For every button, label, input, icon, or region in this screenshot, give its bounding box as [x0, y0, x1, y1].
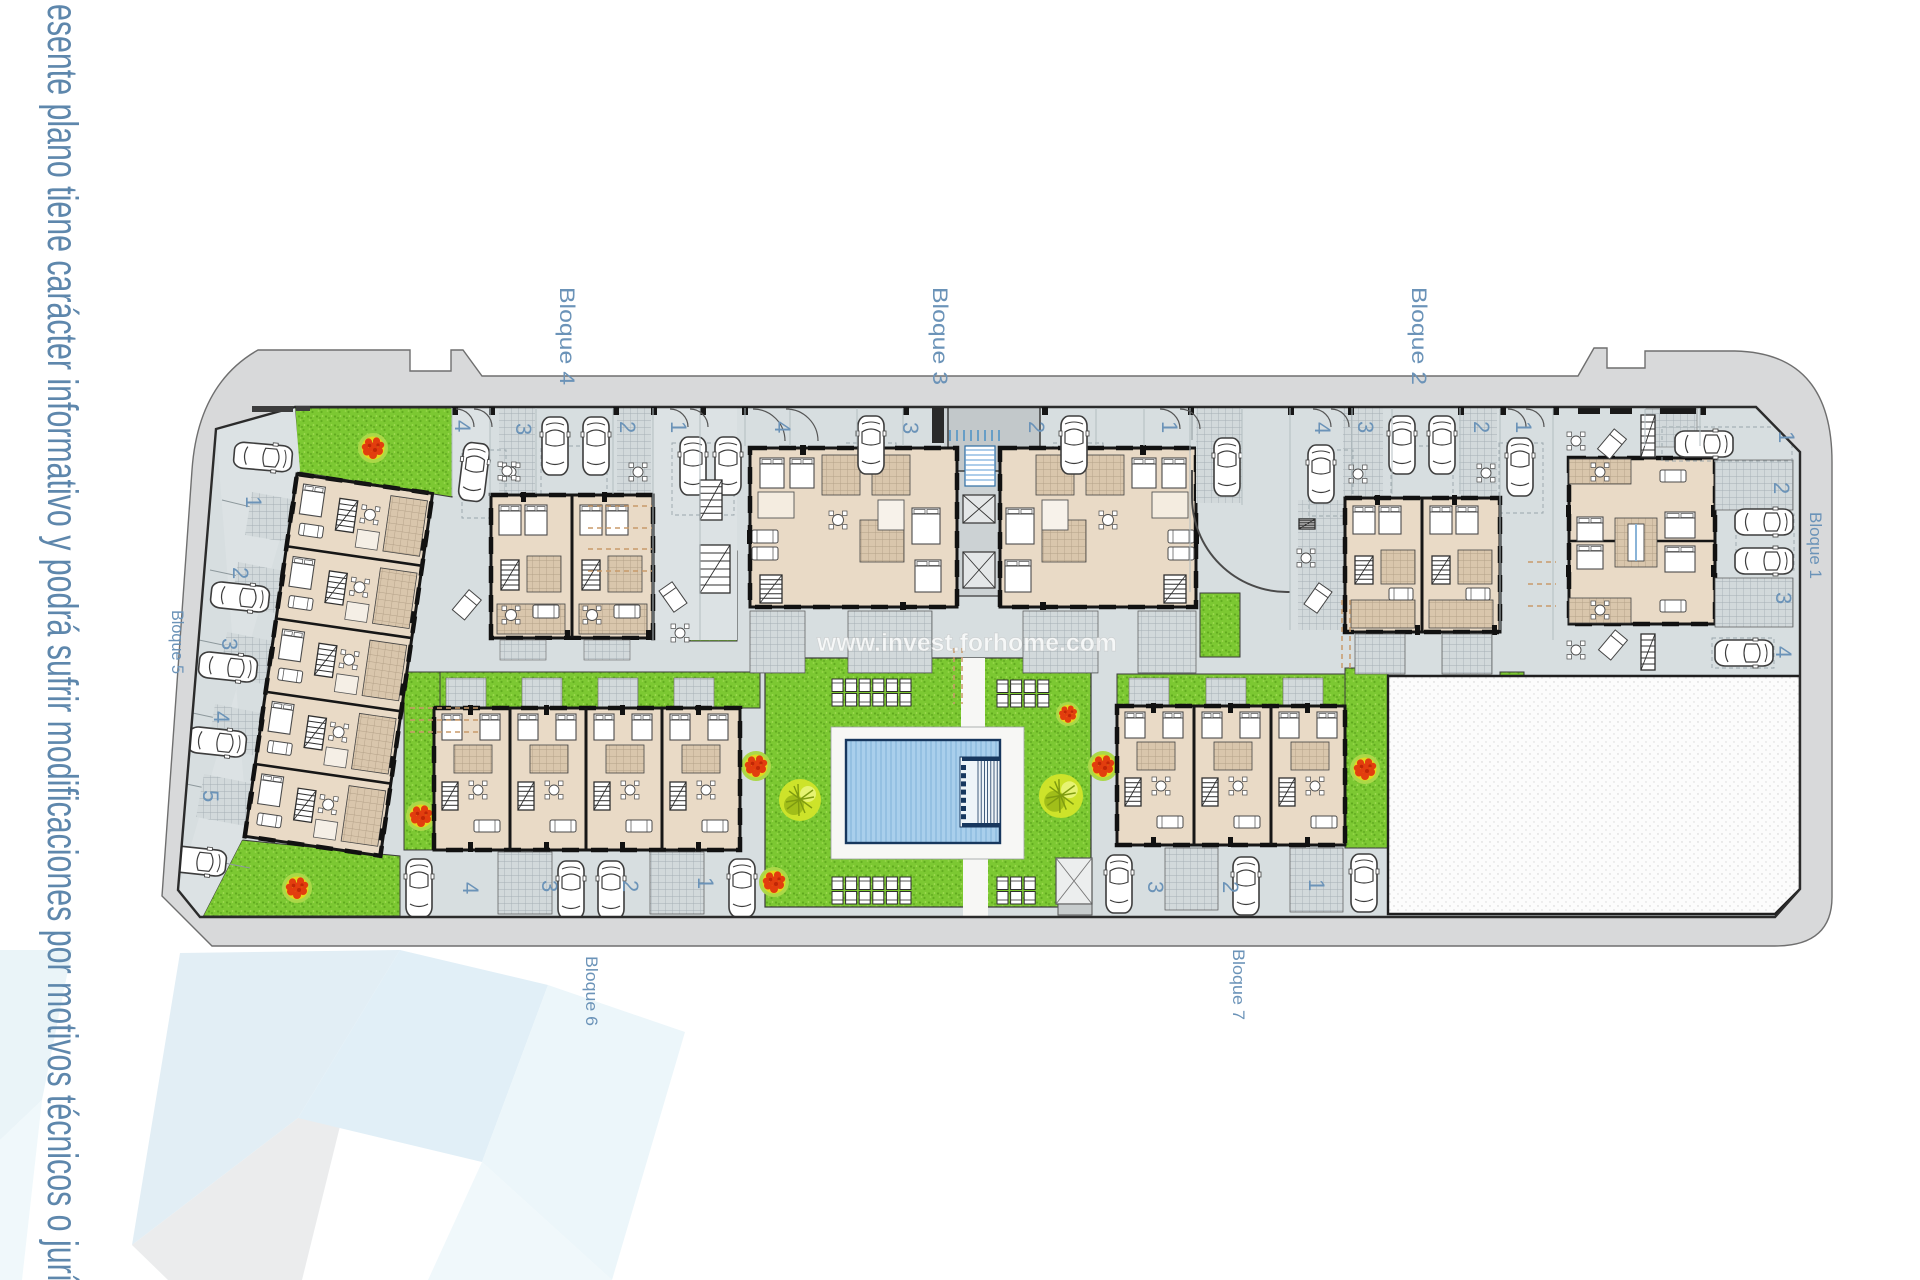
svg-text:1: 1 — [1157, 421, 1182, 433]
svg-text:4: 4 — [1771, 646, 1796, 658]
svg-text:2: 2 — [618, 880, 643, 892]
svg-text:1: 1 — [666, 421, 691, 433]
svg-text:1: 1 — [241, 496, 266, 508]
svg-text:www.invest.forhome.com: www.invest.forhome.com — [816, 629, 1117, 657]
svg-text:4: 4 — [1310, 422, 1335, 434]
svg-text:1: 1 — [1511, 421, 1536, 433]
svg-text:Bloque 2: Bloque 2 — [1407, 287, 1430, 385]
svg-text:3: 3 — [1143, 881, 1168, 893]
svg-text:4: 4 — [458, 882, 483, 894]
svg-text:3: 3 — [217, 638, 242, 650]
svg-text:5: 5 — [198, 790, 223, 802]
svg-text:3: 3 — [537, 880, 562, 892]
svg-text:Bloque 3: Bloque 3 — [928, 287, 951, 385]
svg-text:2: 2 — [1469, 421, 1494, 433]
svg-text:2: 2 — [228, 567, 253, 579]
svg-text:Bloque 7: Bloque 7 — [1229, 949, 1248, 1020]
svg-text:Bloque 1: Bloque 1 — [1806, 512, 1825, 579]
svg-text:Bloque 6: Bloque 6 — [582, 956, 601, 1026]
svg-text:2: 2 — [1024, 421, 1049, 433]
svg-text:2: 2 — [1769, 482, 1794, 494]
svg-text:3: 3 — [898, 422, 923, 434]
svg-text:2: 2 — [615, 421, 640, 433]
svg-text:3: 3 — [1771, 592, 1796, 604]
svg-text:4: 4 — [450, 420, 475, 432]
svg-text:2: 2 — [1218, 881, 1243, 893]
svg-text:esente plano tiene carácter in: esente plano tiene carácter informativo … — [38, 4, 86, 1280]
svg-text:4: 4 — [770, 421, 795, 433]
svg-text:Bloque 4: Bloque 4 — [555, 287, 578, 385]
svg-text:1: 1 — [1774, 431, 1799, 443]
svg-text:3: 3 — [511, 423, 536, 435]
svg-text:4: 4 — [209, 711, 234, 723]
svg-text:1: 1 — [1304, 879, 1329, 891]
svg-text:3: 3 — [1353, 421, 1378, 433]
svg-text:1: 1 — [693, 877, 718, 889]
svg-text:Bloque 5: Bloque 5 — [168, 610, 187, 674]
